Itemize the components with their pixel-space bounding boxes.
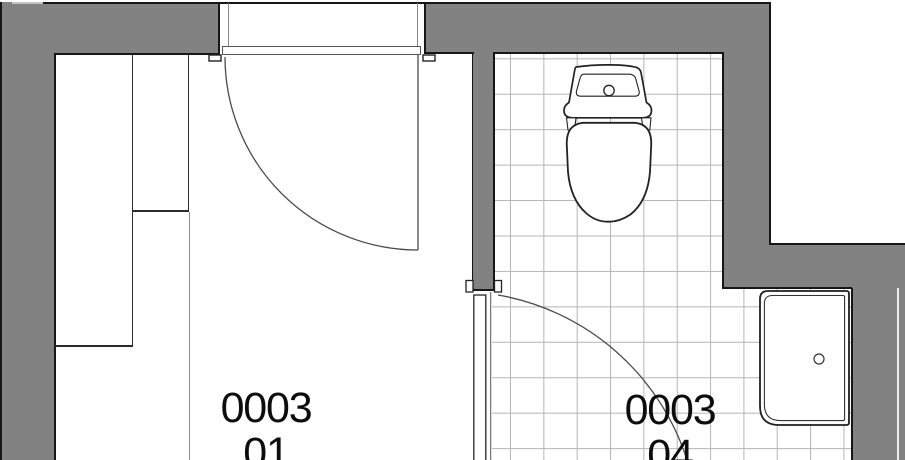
fixtures-layer xyxy=(0,0,905,460)
door-stop-bath-left xyxy=(466,281,473,293)
room-suffix: 04 xyxy=(590,433,750,460)
room-number: 0003 xyxy=(186,386,346,431)
door-room-01-symbol xyxy=(209,55,435,250)
room-label-0003-04: 0003 04 xyxy=(590,388,750,460)
floor-plan-canvas: 0003 01 0003 04 xyxy=(0,0,905,460)
shower-drain xyxy=(814,354,824,364)
toilet-flush-button xyxy=(604,85,614,95)
toilet-bowl xyxy=(567,123,651,222)
shower-tray-inner xyxy=(764,296,844,421)
door-stop-left xyxy=(209,55,221,61)
shower-tray-icon xyxy=(760,291,849,425)
room-label-0003-01: 0003 01 xyxy=(186,386,346,460)
room-suffix: 01 xyxy=(186,431,346,460)
room-number: 0003 xyxy=(590,388,750,433)
door-stop-right xyxy=(423,55,435,61)
door-arc-room-01 xyxy=(225,57,418,250)
door-stop-bath-right xyxy=(495,281,502,293)
door-leaf-room-04 xyxy=(474,295,486,460)
toilet-icon xyxy=(564,65,652,222)
